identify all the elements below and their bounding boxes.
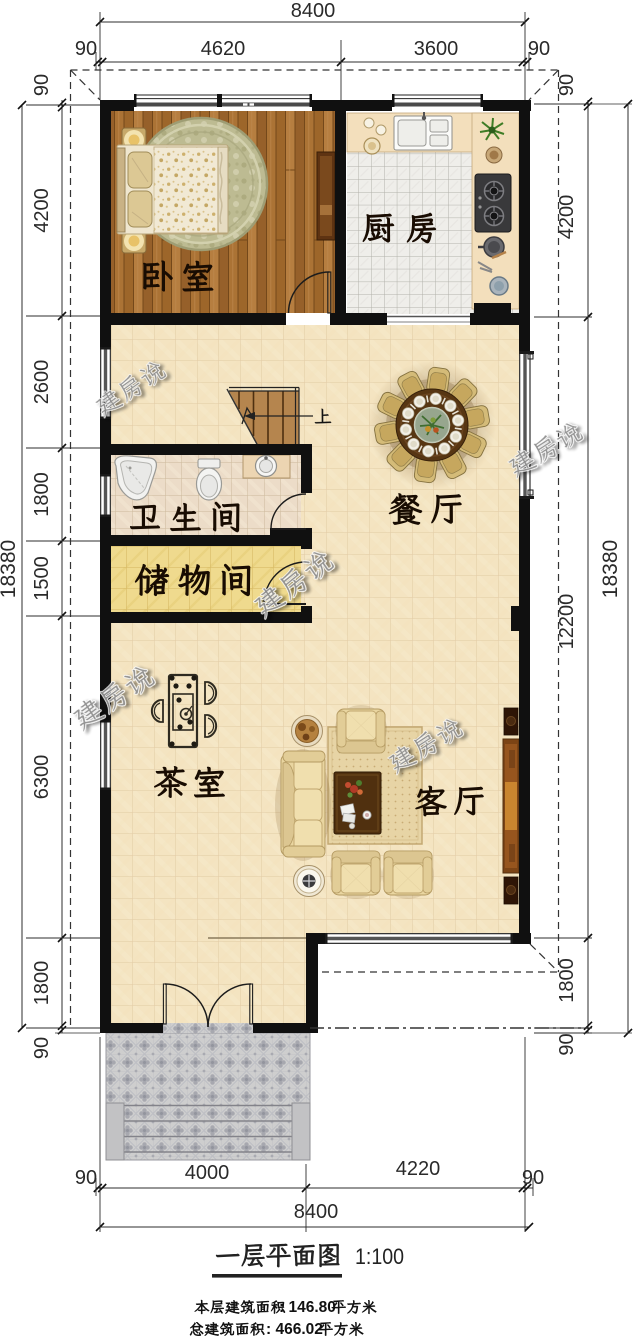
svg-text:18380: 18380 — [599, 540, 622, 598]
svg-text:90: 90 — [31, 74, 53, 96]
svg-text:1:100: 1:100 — [355, 1244, 404, 1269]
svg-text:90: 90 — [75, 38, 97, 60]
svg-text:1800: 1800 — [31, 961, 53, 1006]
svg-text:90: 90 — [528, 38, 550, 60]
svg-text:8400: 8400 — [294, 1201, 339, 1223]
svg-text:4200: 4200 — [31, 188, 53, 233]
svg-text:4220: 4220 — [396, 1158, 441, 1180]
svg-text:: 146.80: : 146.80 — [279, 1299, 336, 1316]
svg-text:90: 90 — [556, 74, 578, 96]
svg-text:8400: 8400 — [291, 0, 336, 22]
svg-text:6300: 6300 — [31, 755, 53, 800]
svg-text:4620: 4620 — [201, 38, 246, 60]
svg-text:4200: 4200 — [556, 195, 578, 240]
svg-text:90: 90 — [31, 1037, 53, 1059]
svg-text:1800: 1800 — [31, 472, 53, 517]
svg-text:1500: 1500 — [31, 556, 53, 601]
svg-text:1800: 1800 — [556, 958, 578, 1003]
svg-text:90: 90 — [556, 1033, 578, 1055]
svg-text:90: 90 — [75, 1167, 97, 1189]
svg-text:12200: 12200 — [556, 594, 578, 650]
svg-text:18380: 18380 — [0, 540, 20, 598]
svg-text:2600: 2600 — [31, 360, 53, 405]
svg-text:3600: 3600 — [414, 38, 459, 60]
svg-text:4000: 4000 — [185, 1162, 230, 1184]
svg-text:: 466.02: : 466.02 — [266, 1321, 323, 1338]
